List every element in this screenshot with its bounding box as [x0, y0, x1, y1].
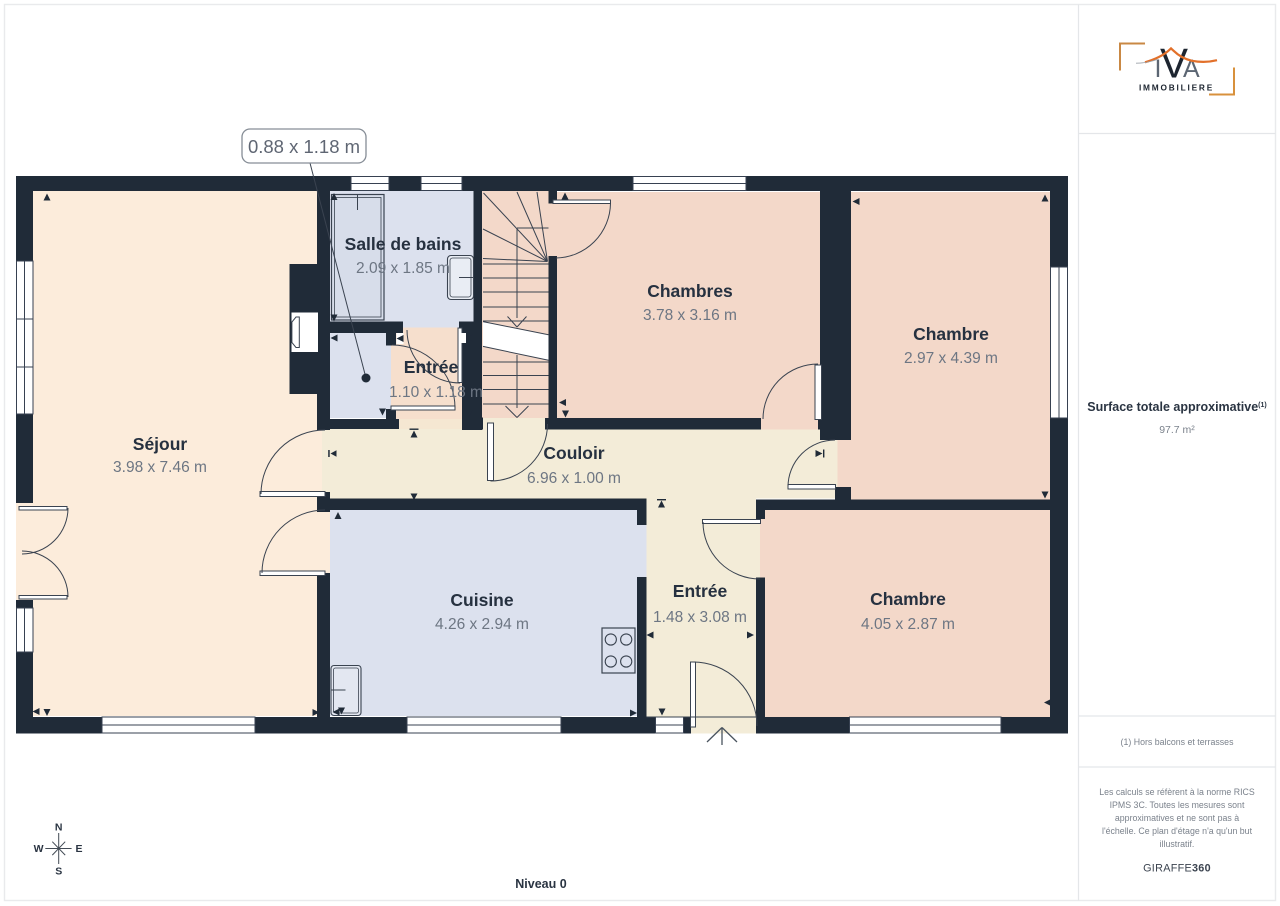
svg-text:6.96 x 1.00 m: 6.96 x 1.00 m [527, 470, 621, 487]
svg-text:Niveau 0: Niveau 0 [515, 877, 566, 891]
svg-text:N: N [55, 822, 63, 834]
svg-text:Cuisine: Cuisine [450, 590, 513, 610]
svg-text:Entrée: Entrée [404, 357, 459, 377]
svg-text:l'échelle. Ce plan d'étage n'a: l'échelle. Ce plan d'étage n'a qu'un but [1102, 826, 1253, 836]
svg-text:4.05 x 2.87 m: 4.05 x 2.87 m [861, 616, 955, 633]
svg-text:Chambres: Chambres [647, 281, 733, 301]
svg-text:GIRAFFE360: GIRAFFE360 [1143, 863, 1211, 875]
svg-text:illustratif.: illustratif. [1160, 839, 1195, 849]
svg-text:Les calculs se réfèrent à la n: Les calculs se réfèrent à la norme RICS [1099, 787, 1255, 797]
svg-text:Couloir: Couloir [543, 443, 604, 463]
svg-text:3.78 x 3.16 m: 3.78 x 3.16 m [643, 307, 737, 324]
svg-text:IPMS 3C. Toutes les mesures so: IPMS 3C. Toutes les mesures sont [1110, 800, 1245, 810]
svg-text:S: S [55, 866, 62, 878]
svg-text:approximatives et ne sont pas: approximatives et ne sont pas à [1115, 813, 1239, 823]
svg-text:1.48 x 3.08 m: 1.48 x 3.08 m [653, 609, 747, 626]
svg-text:97.7 m²: 97.7 m² [1159, 424, 1195, 436]
svg-text:Surface totale approximative(1: Surface totale approximative(1) [1087, 400, 1266, 414]
svg-text:IMMOBILIERE: IMMOBILIERE [1139, 83, 1214, 93]
svg-text:(1) Hors balcons et terrasses: (1) Hors balcons et terrasses [1121, 737, 1235, 747]
svg-text:3.98 x 7.46 m: 3.98 x 7.46 m [113, 459, 207, 476]
svg-text:Chambre: Chambre [913, 324, 989, 344]
svg-text:4.26 x 2.94 m: 4.26 x 2.94 m [435, 616, 529, 633]
svg-text:E: E [75, 843, 82, 855]
svg-text:2.97 x 4.39 m: 2.97 x 4.39 m [904, 350, 998, 367]
svg-text:W: W [34, 843, 44, 855]
svg-text:1.10 x 1.18 m: 1.10 x 1.18 m [389, 384, 483, 401]
svg-text:Entrée: Entrée [673, 581, 728, 601]
svg-text:Salle de bains: Salle de bains [345, 234, 462, 254]
svg-text:0.88 x 1.18 m: 0.88 x 1.18 m [248, 136, 360, 157]
svg-text:2.09 x 1.85 m: 2.09 x 1.85 m [356, 260, 450, 277]
svg-text:Chambre: Chambre [870, 589, 946, 609]
svg-text:Séjour: Séjour [133, 434, 188, 454]
